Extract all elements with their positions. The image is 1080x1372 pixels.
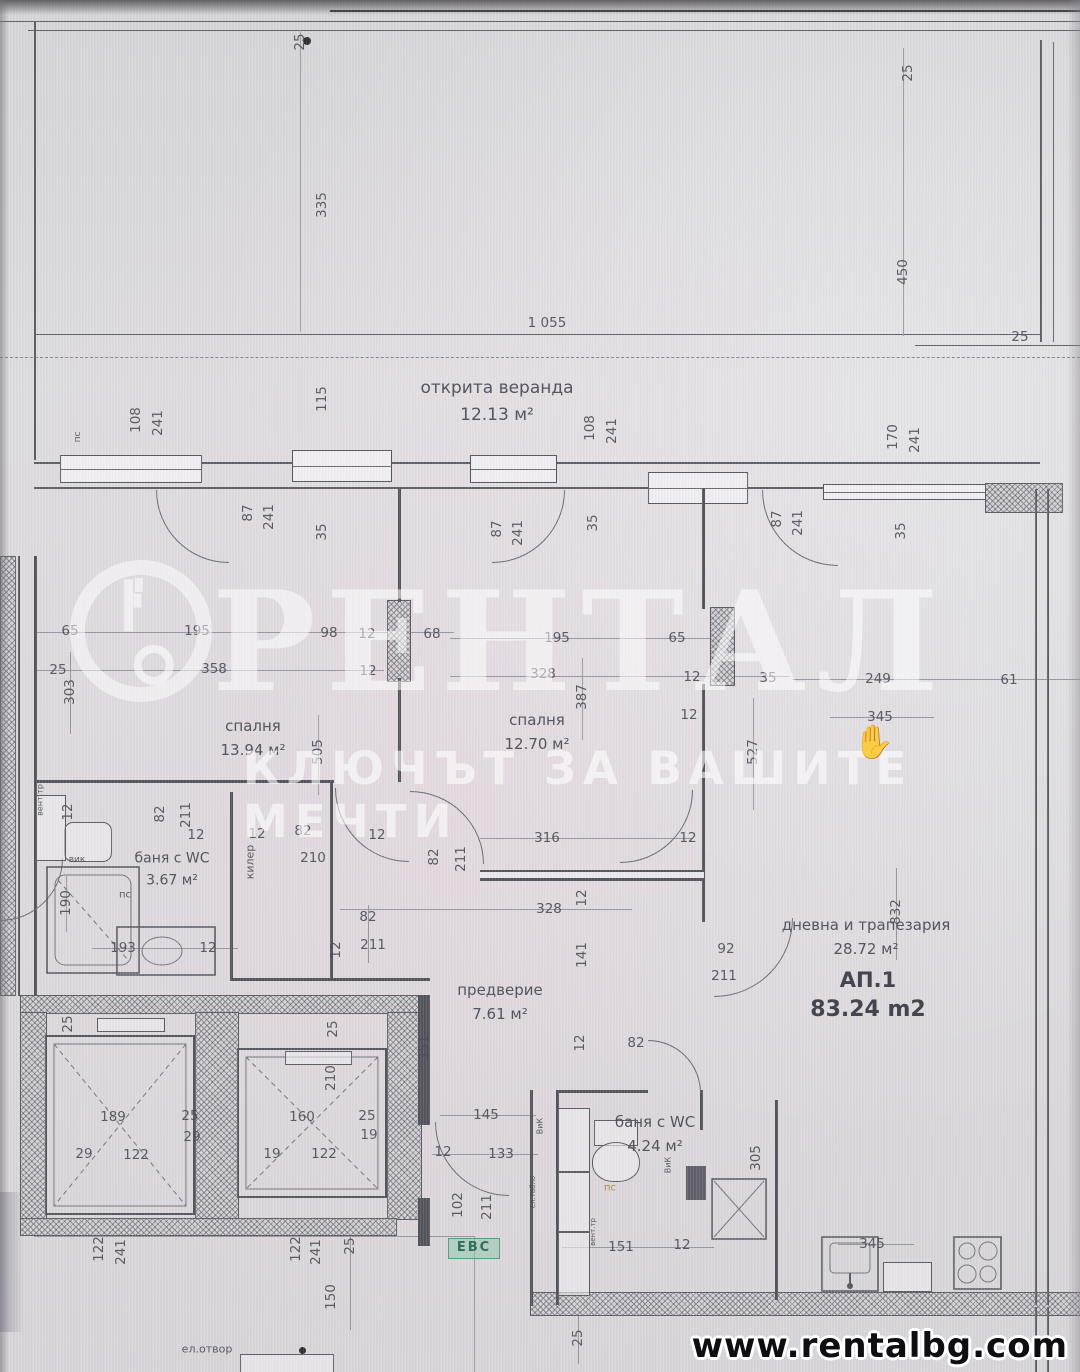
text-label: пс xyxy=(119,890,131,901)
text-label: ВиК xyxy=(536,1118,545,1134)
dim-label: 241 xyxy=(308,1239,324,1265)
dim-label: 189 xyxy=(100,1109,126,1125)
dim-label: 241 xyxy=(604,418,620,444)
dim-label: 358 xyxy=(201,661,227,677)
cabinet xyxy=(558,1172,590,1232)
dim-label: 145 xyxy=(473,1107,499,1123)
dimension-line xyxy=(340,909,632,910)
dim-label: 1 055 xyxy=(528,315,567,331)
wall-hatched xyxy=(20,1218,397,1236)
apartment-number: АП.1 xyxy=(810,968,925,992)
wall xyxy=(230,792,233,980)
dim-label: 82 xyxy=(426,848,442,865)
wall xyxy=(34,22,36,460)
dim-label: 303 xyxy=(62,679,78,705)
dim-label: 12 xyxy=(680,707,697,723)
dim-label: 211 xyxy=(479,1194,495,1220)
dim-label: 12 xyxy=(574,889,590,906)
dim-label: 25 xyxy=(292,33,308,50)
wall-hatched xyxy=(20,1012,47,1220)
dim-label: 98 xyxy=(320,625,337,641)
dim-label: 122 xyxy=(311,1146,337,1162)
dim-label: 87 xyxy=(769,510,785,527)
wall xyxy=(398,678,401,782)
wall xyxy=(702,684,705,880)
dim-label: 12 xyxy=(368,827,385,843)
website-watermark: www.rentalbg.com xyxy=(692,1326,1068,1366)
room-label: баня с WC3.67 м² xyxy=(134,848,209,893)
dim-label: 19 xyxy=(263,1146,280,1162)
boiler xyxy=(686,1166,706,1200)
cabinet xyxy=(558,1108,590,1172)
dim-label: 305 xyxy=(748,1145,764,1171)
room-label: спалня13.94 м² xyxy=(220,714,285,762)
dim-label: 65 xyxy=(668,630,685,646)
wall xyxy=(0,21,1080,22)
dim-label: 160 xyxy=(289,1109,315,1125)
veranda-boundary xyxy=(0,357,1080,358)
hand-cursor-icon: ✋ xyxy=(853,722,894,762)
dim-label: 12 xyxy=(328,941,344,958)
dimension-line xyxy=(450,676,790,677)
dim-label: 151 xyxy=(608,1239,634,1255)
dim-label: 241 xyxy=(907,427,923,453)
window xyxy=(648,472,748,504)
dim-label: 108 xyxy=(128,407,144,433)
dim-label: 25 xyxy=(325,1020,341,1037)
text-label: вент.тр xyxy=(36,784,45,816)
dim-label: 35 xyxy=(893,522,909,539)
dim-label: 387 xyxy=(574,684,590,710)
window xyxy=(60,455,202,483)
dimension-line xyxy=(34,334,1042,335)
dim-label: 25 xyxy=(49,662,66,678)
dim-label: 25 xyxy=(60,1015,76,1032)
dimension-line xyxy=(903,48,904,336)
dim-label: 351 xyxy=(416,1035,432,1061)
dim-label: 82 xyxy=(294,823,311,839)
wall xyxy=(700,1090,703,1130)
photo-edge xyxy=(0,0,1080,15)
text-label: ел.отвор xyxy=(182,1343,233,1356)
wall-hatched xyxy=(195,1012,239,1220)
dim-label: 92 xyxy=(717,941,734,957)
dim-label: 150 xyxy=(323,1284,339,1310)
elevator-door-slot xyxy=(97,1018,165,1032)
dim-label: 25 xyxy=(900,64,916,81)
dim-label: 87 xyxy=(489,520,505,537)
photo-edge xyxy=(0,0,9,1372)
dim-label: 25 xyxy=(1011,329,1028,345)
dim-label: 195 xyxy=(184,623,210,639)
dim-label: 241 xyxy=(150,410,166,436)
apartment-label: АП.1 83.24 m2 xyxy=(810,968,925,1022)
dim-label: 241 xyxy=(510,520,526,546)
cabinet xyxy=(558,1232,590,1296)
dim-label: 82 xyxy=(627,1035,644,1051)
dim-label: 12 xyxy=(572,1034,588,1051)
wall xyxy=(1035,489,1037,1305)
wall-hatched xyxy=(387,600,411,682)
dim-label: 25 xyxy=(181,1108,198,1124)
dim-label: 25 xyxy=(358,1108,375,1124)
dim-label: 316 xyxy=(534,830,560,846)
dim-label: 61 xyxy=(1000,672,1017,688)
dim-label: 170 xyxy=(885,424,901,450)
wall xyxy=(230,978,430,981)
dim-label: 211 xyxy=(453,846,469,872)
room-label: открита веранда12.13 м² xyxy=(420,375,573,429)
shower-tray xyxy=(711,1178,767,1240)
text-label: вент.тр xyxy=(589,1218,597,1246)
text-label: вик xyxy=(69,855,86,865)
dim-label: 210 xyxy=(300,850,326,866)
wall xyxy=(775,1100,778,1300)
dimension-line xyxy=(300,30,301,332)
dim-label: 12 xyxy=(358,626,375,642)
dim-label: 210 xyxy=(323,1065,339,1091)
dim-label: 211 xyxy=(360,937,386,953)
wall xyxy=(18,556,20,996)
text-label: пс xyxy=(73,432,83,443)
elevator-door-slot xyxy=(285,1051,352,1065)
dim-label: 505 xyxy=(310,739,326,765)
wall xyxy=(915,345,1080,346)
text-label: ВиК xyxy=(664,1157,673,1173)
dim-label: 211 xyxy=(178,802,194,828)
dim-label: 190 xyxy=(58,890,74,916)
kitchen-counter xyxy=(883,1262,932,1292)
apartment-area: 83.24 m2 xyxy=(810,997,925,1022)
survey-point xyxy=(299,1347,306,1354)
wall-hatched xyxy=(985,483,1063,513)
wall xyxy=(556,1090,648,1093)
room-label: дневна и трапезария28.72 м² xyxy=(782,913,950,961)
text-label: килер xyxy=(244,845,257,880)
dim-label: 328 xyxy=(536,901,562,917)
dim-label: 102 xyxy=(450,1192,466,1218)
wall xyxy=(702,880,705,922)
dim-label: 335 xyxy=(314,192,330,218)
dim-label: 35 xyxy=(585,514,601,531)
dim-label: 35 xyxy=(759,670,776,686)
dim-label: 115 xyxy=(314,386,330,412)
photo-edge xyxy=(0,1192,24,1332)
room-label: спалня12.70 м² xyxy=(504,708,569,756)
evs-badge: ЕВС xyxy=(448,1238,500,1259)
dim-label: 122 xyxy=(123,1147,149,1163)
dim-label: 12 xyxy=(434,1144,451,1160)
dim-label: 19 xyxy=(360,1127,377,1143)
dim-label: 241 xyxy=(790,510,806,536)
photo-edge xyxy=(1067,0,1080,1372)
dim-label: 87 xyxy=(240,504,256,521)
dim-label: 328 xyxy=(530,666,556,682)
cooktop xyxy=(953,1236,1002,1290)
elevator-shaft xyxy=(45,1035,195,1215)
dim-label: 25 xyxy=(342,1237,358,1254)
dim-label: 12 xyxy=(679,830,696,846)
dim-label: 195 xyxy=(544,630,570,646)
dim-label: 12 xyxy=(248,826,265,842)
dim-label: 133 xyxy=(488,1146,514,1162)
room-label: баня с WC4.24 м² xyxy=(615,1110,695,1158)
text-label: пс xyxy=(604,1183,616,1194)
dim-label: 193 xyxy=(110,940,136,956)
dim-label: 68 xyxy=(423,626,440,642)
dim-label: 211 xyxy=(711,968,737,984)
dim-label: 12 xyxy=(199,940,216,956)
dim-label: 25 xyxy=(570,1329,586,1346)
floorplan-photo: 25335254501 05525пс108241115108241170241… xyxy=(0,0,1080,1372)
wall-hatched xyxy=(530,1292,1080,1316)
dim-label: 450 xyxy=(895,259,911,285)
dim-label: 35 xyxy=(314,523,330,540)
dim-label: 122 xyxy=(91,1236,107,1262)
room-label: предверие7.61 м² xyxy=(457,978,543,1026)
dim-label: 29 xyxy=(75,1146,92,1162)
dim-label: 12 xyxy=(60,803,76,820)
dim-label: 12 xyxy=(359,663,376,679)
wall xyxy=(418,1198,430,1246)
wall xyxy=(702,488,705,609)
dim-label: 12 xyxy=(187,827,204,843)
dim-label: 527 xyxy=(745,739,761,765)
dim-label: 29 xyxy=(183,1129,200,1145)
wall xyxy=(34,556,37,996)
dim-label: 12 xyxy=(673,1237,690,1253)
wall xyxy=(1040,40,1042,342)
dim-label: 82 xyxy=(152,805,168,822)
dim-label: 141 xyxy=(574,942,590,968)
wall xyxy=(28,30,1080,31)
wall xyxy=(1047,489,1049,1305)
dim-label: 122 xyxy=(288,1236,304,1262)
window xyxy=(292,450,392,482)
text-label: ел.табло xyxy=(529,1176,537,1208)
dim-label: 82 xyxy=(359,909,376,925)
dim-label: 241 xyxy=(113,1239,129,1265)
window xyxy=(470,455,557,483)
dim-label: 241 xyxy=(261,504,277,530)
wall xyxy=(1053,42,1054,342)
wall xyxy=(480,870,704,881)
dim-label: 12 xyxy=(683,669,700,685)
dim-label: 249 xyxy=(865,671,891,687)
wall-hatched xyxy=(710,607,735,686)
dim-label: 108 xyxy=(582,415,598,441)
wall xyxy=(34,780,334,783)
floor-opening xyxy=(240,1354,334,1372)
dim-label: 65 xyxy=(61,623,78,639)
wall xyxy=(398,488,401,602)
dim-label: 345 xyxy=(859,1236,885,1252)
